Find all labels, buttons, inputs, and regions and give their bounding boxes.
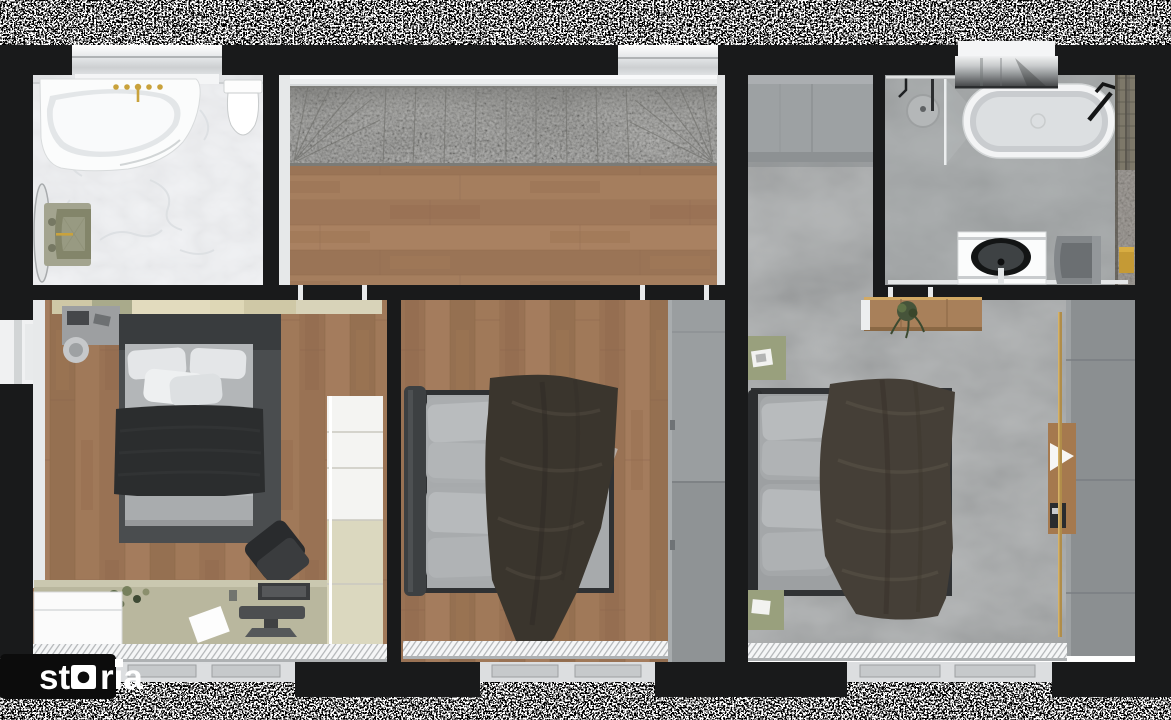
svg-text:st: st <box>39 658 70 697</box>
